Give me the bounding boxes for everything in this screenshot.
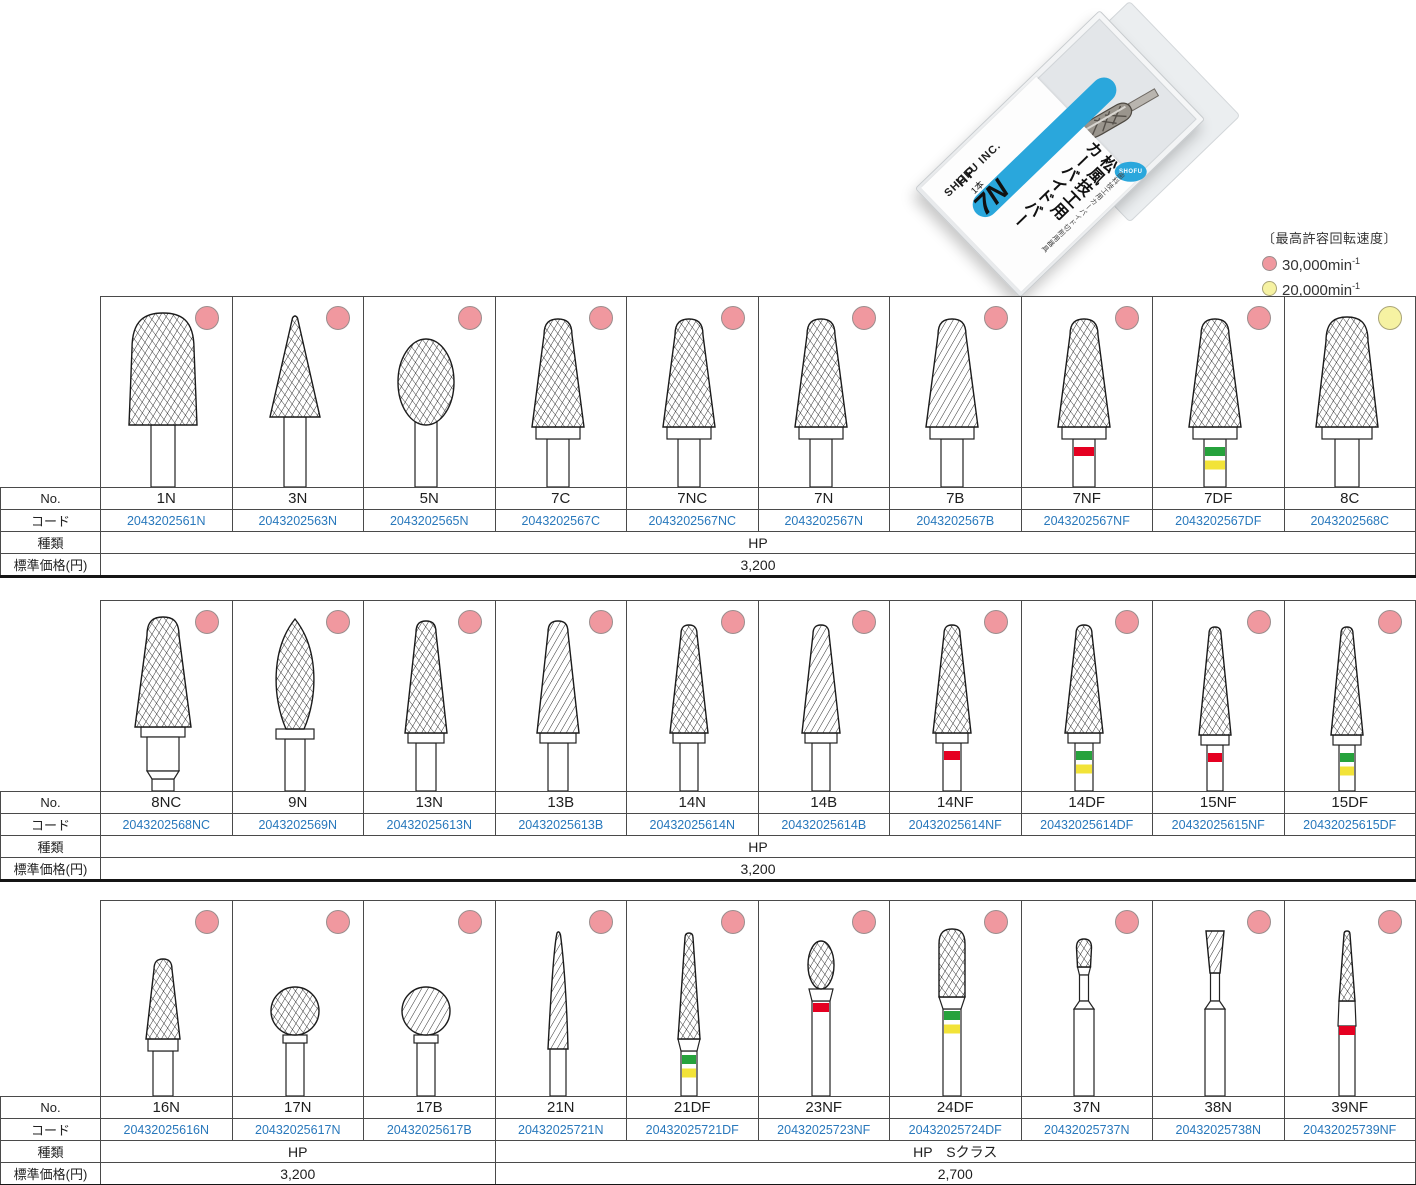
bur-cell-14DF — [1021, 601, 1153, 792]
speed-dot-pink — [984, 610, 1008, 634]
bur-number: 15NF — [1153, 792, 1285, 814]
bur-number: 3N — [232, 488, 364, 510]
bur-number: 14B — [758, 792, 890, 814]
bur-cell-39NF — [1284, 901, 1416, 1097]
type-value: HP Sクラス — [495, 1141, 1416, 1163]
price-value: 3,200 — [101, 554, 1416, 577]
bur-number: 1N — [101, 488, 233, 510]
product-code: 20432025721N — [495, 1119, 627, 1141]
speed-dot-pink — [721, 610, 745, 634]
bur-cell-38N — [1153, 901, 1285, 1097]
bur-cell-7N — [758, 297, 890, 488]
speed-dot-pink — [195, 910, 219, 934]
legend-item-30000: 30,000min-1 — [1262, 251, 1416, 276]
speed-dot-pink — [1378, 910, 1402, 934]
spacer-cell — [1, 297, 101, 488]
bur-cell-7NC — [627, 297, 759, 488]
product-code: 20432025739NF — [1284, 1119, 1416, 1141]
bur-cell-7B — [890, 297, 1022, 488]
product-code: 2043202561N — [101, 510, 233, 532]
bur-number: 39NF — [1284, 1097, 1416, 1119]
product-code: 20432025615NF — [1153, 814, 1285, 836]
product-code: 20432025613N — [364, 814, 496, 836]
bur-number: 21DF — [627, 1097, 759, 1119]
bur-number: 14DF — [1021, 792, 1153, 814]
bur-number: 16N — [101, 1097, 233, 1119]
product-code: 20432025737N — [1021, 1119, 1153, 1141]
speed-dot-pink — [1115, 306, 1139, 330]
product-code: 20432025738N — [1153, 1119, 1285, 1141]
row-label-code: コード — [1, 814, 101, 836]
speed-dot-pink — [458, 306, 482, 330]
product-code: 20432025723NF — [758, 1119, 890, 1141]
speed-dot-pink — [458, 610, 482, 634]
bur-cell-23NF — [758, 901, 890, 1097]
bur-cell-24DF — [890, 901, 1022, 1097]
bur-number: 7C — [495, 488, 627, 510]
price-value: 3,200 — [101, 858, 1416, 881]
bur-number: 17B — [364, 1097, 496, 1119]
bur-cell-8C — [1284, 297, 1416, 488]
price-value: 3,200 — [101, 1163, 496, 1185]
bur-number: 24DF — [890, 1097, 1022, 1119]
bur-cell-7DF — [1153, 297, 1285, 488]
bur-number: 8NC — [101, 792, 233, 814]
row-label-price: 標準価格(円) — [1, 1163, 101, 1185]
speed-dot-pink — [852, 610, 876, 634]
product-code: 2043202567B — [890, 510, 1022, 532]
bur-cell-7NF — [1021, 297, 1153, 488]
bur-number: 8C — [1284, 488, 1416, 510]
product-code: 20432025617B — [364, 1119, 496, 1141]
speed-dot-pink — [1115, 910, 1139, 934]
product-code: 20432025616N — [101, 1119, 233, 1141]
product-code: 20432025614N — [627, 814, 759, 836]
bur-number: 7DF — [1153, 488, 1285, 510]
bur-cell-1N — [101, 297, 233, 488]
bur-number: 15DF — [1284, 792, 1416, 814]
product-code: 20432025617N — [232, 1119, 364, 1141]
product-code: 20432025721DF — [627, 1119, 759, 1141]
speed-dot-pink — [1247, 306, 1271, 330]
yellow-dot-icon — [1262, 281, 1277, 296]
bur-cell-5N — [364, 297, 496, 488]
product-table-3: No.16N17N17B21N21DF23NF24DF37N38N39NFコード… — [0, 900, 1416, 1185]
product-code: 2043202567DF — [1153, 510, 1285, 532]
speed-dot-pink — [984, 910, 1008, 934]
speed-dot-pink — [1378, 610, 1402, 634]
bur-number: 9N — [232, 792, 364, 814]
bur-cell-3N — [232, 297, 364, 488]
bur-cell-14B — [758, 601, 890, 792]
product-code: 2043202567C — [495, 510, 627, 532]
bur-number: 14N — [627, 792, 759, 814]
bur-cell-21DF — [627, 901, 759, 1097]
bur-number: 7N — [758, 488, 890, 510]
speed-dot-pink — [458, 910, 482, 934]
type-value: HP — [101, 1141, 496, 1163]
speed-dot-pink — [1247, 910, 1271, 934]
row-label-code: コード — [1, 1119, 101, 1141]
speed-dot-pink — [1247, 610, 1271, 634]
bur-cell-13N — [364, 601, 496, 792]
product-code: 2043202567NC — [627, 510, 759, 532]
product-code: 2043202563N — [232, 510, 364, 532]
bur-cell-8NC — [101, 601, 233, 792]
bur-cell-37N — [1021, 901, 1153, 1097]
bur-number: 7B — [890, 488, 1022, 510]
speed-dot-pink — [589, 910, 613, 934]
bur-number: 5N — [364, 488, 496, 510]
product-code: 20432025724DF — [890, 1119, 1022, 1141]
bur-cell-15DF — [1284, 601, 1416, 792]
bur-cell-14NF — [890, 601, 1022, 792]
speed-dot-pink — [852, 910, 876, 934]
bur-cell-13B — [495, 601, 627, 792]
row-label-no: No. — [1, 1097, 101, 1119]
spacer-cell — [1, 901, 101, 1097]
bur-cell-15NF — [1153, 601, 1285, 792]
product-code: 20432025614DF — [1021, 814, 1153, 836]
bur-number: 14NF — [890, 792, 1022, 814]
row-label-kind: 種類 — [1, 1141, 101, 1163]
speed-legend: 〔最高許容回転速度〕 30,000min-1 20,000min-1 — [1262, 228, 1416, 301]
speed-dot-yellow — [1378, 306, 1402, 330]
speed-dot-pink — [589, 306, 613, 330]
package-rotated-group: SHOFU 歯科技工用カーバイド切削用器具 松風技工用 カーバイドバー 7N H… — [916, 10, 1204, 295]
speed-dot-pink — [195, 610, 219, 634]
bur-number: 7NC — [627, 488, 759, 510]
legend-title: 〔最高許容回転速度〕 — [1262, 228, 1416, 247]
row-label-price: 標準価格(円) — [1, 554, 101, 577]
speed-dot-pink — [326, 610, 350, 634]
speed-dot-pink — [326, 306, 350, 330]
row-label-code: コード — [1, 510, 101, 532]
bur-number: 13B — [495, 792, 627, 814]
product-code: 20432025614NF — [890, 814, 1022, 836]
bur-number: 37N — [1021, 1097, 1153, 1119]
speed-dot-pink — [852, 306, 876, 330]
bur-cell-21N — [495, 901, 627, 1097]
row-label-kind: 種類 — [1, 532, 101, 554]
bur-cell-16N — [101, 901, 233, 1097]
bur-cell-9N — [232, 601, 364, 792]
product-photo: SHOFU 歯科技工用カーバイド切削用器具 松風技工用 カーバイドバー 7N H… — [985, 25, 1135, 280]
speed-dot-pink — [195, 306, 219, 330]
bur-number: 38N — [1153, 1097, 1285, 1119]
row-label-no: No. — [1, 488, 101, 510]
speed-dot-pink — [721, 910, 745, 934]
product-code: 2043202568NC — [101, 814, 233, 836]
catalog-page: SHOFU 歯科技工用カーバイド切削用器具 松風技工用 カーバイドバー 7N H… — [0, 0, 1416, 1185]
bur-cell-17N — [232, 901, 364, 1097]
type-value: HP — [101, 532, 1416, 554]
product-code: 20432025614B — [758, 814, 890, 836]
speed-dot-pink — [721, 306, 745, 330]
product-code: 20432025613B — [495, 814, 627, 836]
bur-cell-14N — [627, 601, 759, 792]
bur-number: 17N — [232, 1097, 364, 1119]
bur-number: 7NF — [1021, 488, 1153, 510]
bur-number: 21N — [495, 1097, 627, 1119]
speed-dot-pink — [1115, 610, 1139, 634]
product-table-2: No.8NC9N13N13B14N14B14NF14DF15NF15DFコード2… — [0, 600, 1416, 882]
row-label-price: 標準価格(円) — [1, 858, 101, 881]
bur-number: 23NF — [758, 1097, 890, 1119]
bur-cell-7C — [495, 297, 627, 488]
pink-dot-icon — [1262, 256, 1277, 271]
product-table-1: No.1N3N5N7C7NC7N7B7NF7DF8Cコード2043202561N… — [0, 296, 1416, 578]
type-value: HP — [101, 836, 1416, 858]
product-code: 2043202567N — [758, 510, 890, 532]
spacer-cell — [1, 601, 101, 792]
price-value: 2,700 — [495, 1163, 1416, 1185]
bur-number: 13N — [364, 792, 496, 814]
product-code: 2043202565N — [364, 510, 496, 532]
row-label-kind: 種類 — [1, 836, 101, 858]
speed-dot-pink — [984, 306, 1008, 330]
product-code: 20432025615DF — [1284, 814, 1416, 836]
speed-dot-pink — [326, 910, 350, 934]
row-label-no: No. — [1, 792, 101, 814]
product-code: 2043202567NF — [1021, 510, 1153, 532]
product-code: 2043202569N — [232, 814, 364, 836]
speed-dot-pink — [589, 610, 613, 634]
product-code: 2043202568C — [1284, 510, 1416, 532]
bur-cell-17B — [364, 901, 496, 1097]
